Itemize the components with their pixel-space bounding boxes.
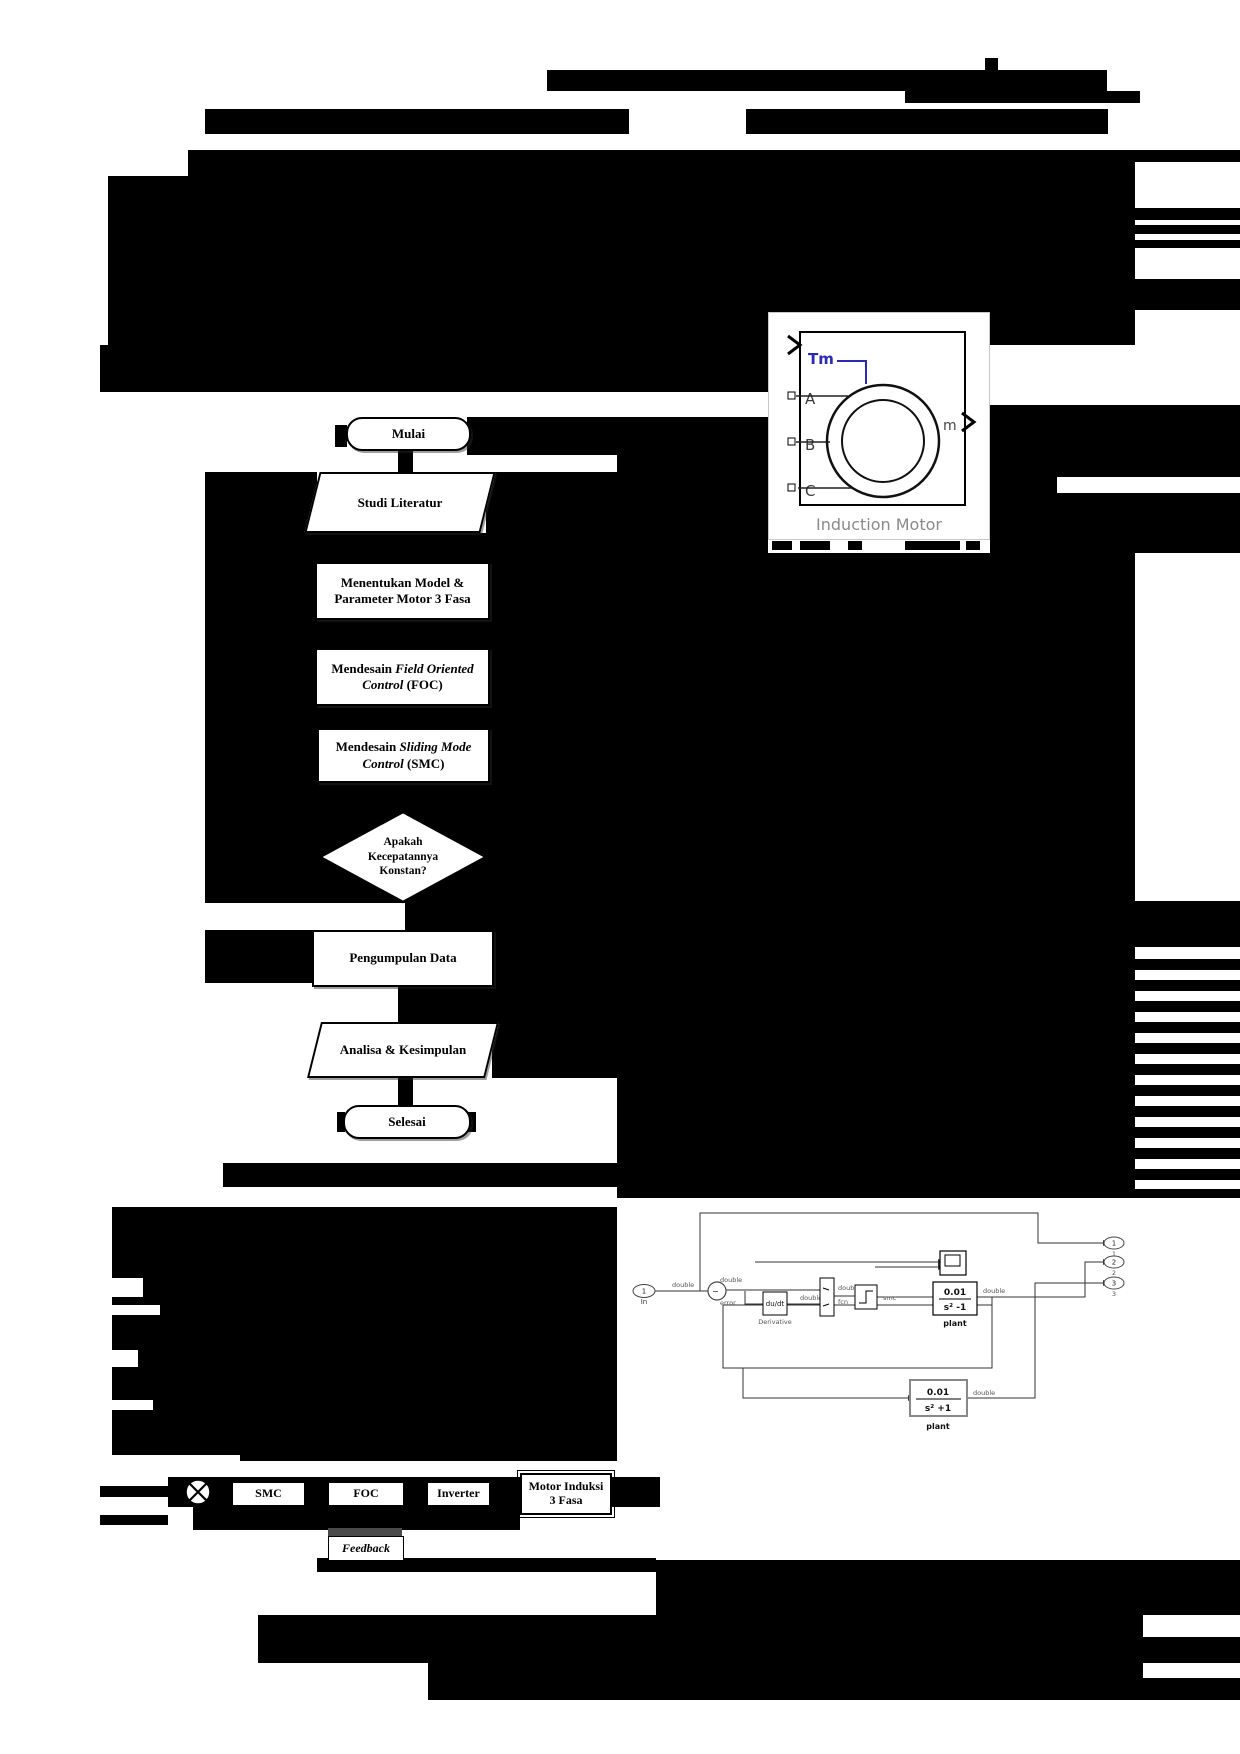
- port-label-m: m: [943, 418, 957, 434]
- flowchart-decision-kecepatan: Apakah Kecepatannya Konstan?: [318, 810, 488, 904]
- plant1-name: plant: [943, 1319, 967, 1328]
- step-label: Mulai: [392, 426, 425, 442]
- redaction-bar: [772, 541, 792, 550]
- simulink-model-figure: 1 In double − double error du/dt Derivat…: [617, 1200, 1140, 1440]
- sum-minus: −: [712, 1287, 719, 1296]
- feedback-shadow-bar: [328, 1528, 402, 1536]
- redaction-bar: [800, 541, 830, 550]
- flowchart-process-foc: Mendesain Field Oriented Control (FOC): [315, 648, 490, 706]
- redaction-bar: [610, 1488, 660, 1507]
- redaction-gap: [1057, 477, 1240, 493]
- redaction-gap: [108, 150, 188, 176]
- signal-label-double: double: [720, 1276, 742, 1284]
- redaction-bar: [112, 1207, 617, 1455]
- redaction-bar: [205, 648, 315, 706]
- signal-label-double: double: [973, 1389, 995, 1397]
- simulink-svg: 1 In double − double error du/dt Derivat…: [617, 1200, 1140, 1440]
- block-label: Feedback: [342, 1542, 390, 1556]
- sum-junction-figure: [180, 1475, 216, 1511]
- redaction-bar: [1135, 1022, 1240, 1033]
- signal-label-double: double: [800, 1294, 822, 1302]
- redaction-gap: [112, 1278, 143, 1297]
- redaction-bar: [746, 109, 1108, 134]
- plant1-denominator: s² -1: [944, 1303, 966, 1313]
- redaction-bar: [1135, 1064, 1240, 1075]
- redaction-bar: [100, 1486, 168, 1497]
- redaction-bar: [848, 541, 862, 550]
- redaction-bar: [258, 1615, 1143, 1663]
- redaction-bar: [100, 345, 768, 392]
- redaction-bar: [1143, 1678, 1240, 1700]
- plant2-denominator: s² +1: [925, 1404, 951, 1414]
- block-feedback: Feedback: [328, 1536, 404, 1561]
- block-label: Motor Induksi: [529, 1480, 604, 1494]
- mux-block: [820, 1278, 834, 1316]
- plant2-numerator: 0.01: [927, 1388, 949, 1398]
- step-label: Mendesain Field Oriented Control (FOC): [323, 661, 482, 694]
- redaction-bar: [1135, 1085, 1240, 1096]
- step-label: Selesai: [388, 1114, 426, 1130]
- signal-label-error: error: [720, 1299, 736, 1307]
- redaction-bar: [617, 947, 1135, 1198]
- redaction-bar: [1135, 1127, 1240, 1138]
- step-label: Analisa & Kesimpulan: [314, 1022, 492, 1078]
- signal-label-smc: smc: [883, 1294, 897, 1302]
- redaction-bar: [413, 983, 617, 1022]
- redaction-gap: [112, 1350, 138, 1367]
- step-label: Apakah Kecepatannya Konstan?: [318, 810, 488, 904]
- redaction-bar: [205, 620, 617, 648]
- redaction-bar: [100, 1515, 168, 1525]
- inport-number: 1: [642, 1288, 646, 1296]
- redaction-bar: [205, 783, 617, 810]
- redaction-bar: [1135, 208, 1240, 220]
- step-label: Studi Literatur: [312, 472, 488, 533]
- document-page: Tm A B C m Induction Motor Mulai: [0, 0, 1240, 1754]
- redaction-bar: [205, 562, 315, 620]
- redaction-bar: [1135, 1106, 1240, 1117]
- redaction-bar: [490, 648, 617, 706]
- redaction-bar: [1135, 1001, 1240, 1012]
- redaction-bar: [1135, 240, 1240, 248]
- outport3-number: 3: [1112, 1280, 1116, 1288]
- plant1-numerator: 0.01: [944, 1288, 966, 1298]
- redaction-bar: [492, 1022, 617, 1078]
- redaction-bar: [1135, 1169, 1240, 1180]
- outport1-number: 1: [1112, 1240, 1116, 1248]
- step-label: Pengumpulan Data: [349, 950, 456, 966]
- redaction-bar: [1135, 1043, 1240, 1054]
- redaction-bar: [1135, 1189, 1240, 1198]
- redaction-bar: [1135, 1148, 1240, 1159]
- inport-name: In: [641, 1298, 648, 1306]
- redaction-bar: [398, 983, 413, 1022]
- induction-motor-svg: Tm A B C m Induction Motor: [768, 312, 990, 540]
- redaction-bar: [486, 472, 617, 533]
- redaction-bar: [205, 728, 317, 783]
- step-label: Menentukan Model & Parameter Motor 3 Fas…: [325, 575, 480, 608]
- flowchart-terminator-mulai: Mulai: [346, 417, 471, 451]
- redaction-bar: [1135, 150, 1240, 162]
- redaction-bar: [617, 901, 1240, 947]
- port-label-tm: Tm: [808, 350, 834, 368]
- redaction-bar: [1135, 225, 1240, 234]
- redaction-bar: [1135, 279, 1240, 310]
- block-label: SMC: [255, 1487, 282, 1501]
- redaction-bar: [656, 1560, 1240, 1615]
- block-label: 3 Fasa: [550, 1494, 583, 1508]
- redaction-bar: [617, 455, 768, 553]
- outport2-name: 2: [1112, 1269, 1116, 1277]
- step-label: Mendesain Sliding Mode Control (SMC): [325, 739, 482, 772]
- redaction-bar: [398, 447, 413, 475]
- block-label: Inverter: [437, 1487, 480, 1501]
- sum-circle-x-icon: [180, 1475, 216, 1511]
- block-foc: FOC: [328, 1482, 404, 1506]
- redaction-bar: [240, 1455, 617, 1461]
- port-label-c: C: [805, 482, 815, 500]
- redaction-bar: [1135, 959, 1240, 970]
- redaction-bar: [490, 930, 617, 983]
- port-label-a: A: [805, 390, 816, 408]
- port-label-b: B: [805, 436, 815, 454]
- block-inverter: Inverter: [427, 1482, 490, 1506]
- flowchart-io-studi-literatur: Studi Literatur: [312, 472, 488, 533]
- redaction-bar: [1143, 1637, 1240, 1663]
- flowchart-process-smc: Mendesain Sliding Mode Control (SMC): [317, 728, 490, 783]
- derivative-text: du/dt: [766, 1300, 785, 1308]
- block-label: FOC: [353, 1487, 378, 1501]
- redaction-bar: [205, 472, 317, 533]
- scope-screen: [945, 1255, 960, 1266]
- redaction-bar: [398, 1078, 413, 1105]
- flowchart-process-model-parameter: Menentukan Model & Parameter Motor 3 Fas…: [315, 562, 490, 620]
- redaction-bar: [223, 1163, 617, 1187]
- redaction-gap: [112, 1305, 160, 1315]
- block-smc: SMC: [232, 1482, 305, 1506]
- induction-motor-figure: Tm A B C m Induction Motor: [768, 312, 990, 540]
- flowchart-terminator-selesai: Selesai: [343, 1105, 471, 1139]
- flowchart-process-pengumpulan-data: Pengumpulan Data: [312, 930, 494, 987]
- redaction-bar: [205, 533, 617, 562]
- redaction-bar: [193, 1507, 520, 1530]
- redaction-bar: [467, 417, 768, 455]
- block-motor-induksi: Motor Induksi 3 Fasa: [520, 1473, 612, 1515]
- signal-label-fcn: fcn: [838, 1298, 848, 1306]
- signal-label-double: double: [672, 1281, 694, 1289]
- redaction-bar: [905, 91, 1140, 103]
- plant2-name: plant: [926, 1422, 950, 1431]
- derivative-name: Derivative: [758, 1318, 792, 1326]
- redaction-bar: [405, 903, 617, 930]
- redaction-bar: [966, 541, 980, 550]
- redaction-bar: [205, 930, 312, 983]
- redaction-bar: [1135, 980, 1240, 991]
- redaction-bar: [205, 706, 617, 728]
- outport3-name: 3: [1112, 1290, 1116, 1298]
- redaction-bar: [490, 728, 617, 783]
- redaction-bar: [905, 541, 960, 550]
- figure-caption: Induction Motor: [816, 515, 942, 534]
- redaction-bar: [205, 109, 629, 134]
- signal-label-double: double: [983, 1287, 1005, 1295]
- outport2-number: 2: [1112, 1259, 1116, 1267]
- redaction-bar: [617, 553, 1135, 901]
- redaction-bar: [547, 70, 1107, 91]
- flowchart-io-analisa-kesimpulan: Analisa & Kesimpulan: [314, 1022, 492, 1078]
- redaction-gap: [112, 1400, 153, 1410]
- redaction-bar: [490, 562, 617, 620]
- redaction-bar: [428, 1663, 1143, 1700]
